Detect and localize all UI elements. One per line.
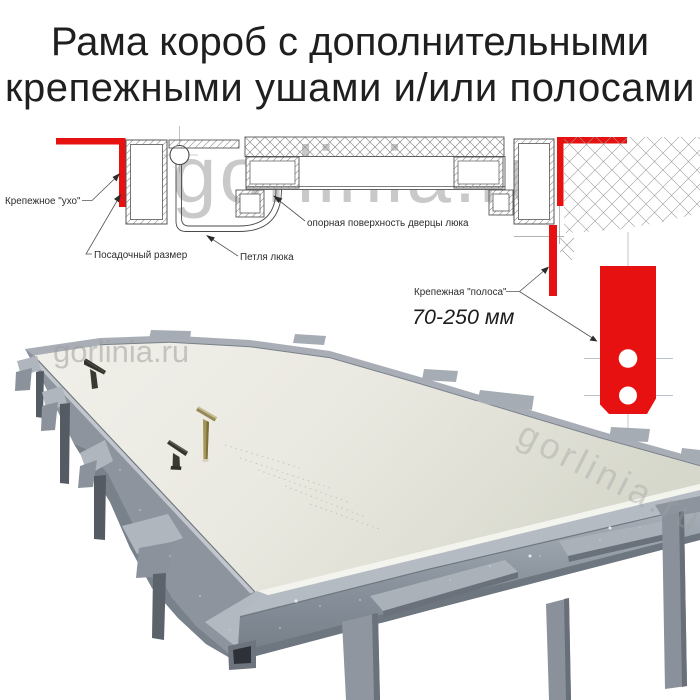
svg-text:Крепежное "ухо": Крепежное "ухо" bbox=[5, 196, 81, 207]
svg-text:gorlinia.ru: gorlinia.ru bbox=[53, 334, 189, 369]
svg-text:70-250 мм: 70-250 мм bbox=[412, 305, 515, 329]
svg-text:Крепежная "полоса": Крепежная "полоса" bbox=[414, 287, 507, 298]
svg-text:опорная поверхность дверцы люк: опорная поверхность дверцы люка bbox=[307, 218, 469, 229]
svg-text:Посадочный размер: Посадочный размер bbox=[94, 250, 188, 261]
svg-text:крепежными ушами и/или полосам: крепежными ушами и/или полосами bbox=[5, 66, 695, 110]
svg-text:Рама короб с дополнительными: Рама короб с дополнительными bbox=[51, 20, 649, 64]
svg-text:Петля люка: Петля люка bbox=[240, 252, 294, 263]
